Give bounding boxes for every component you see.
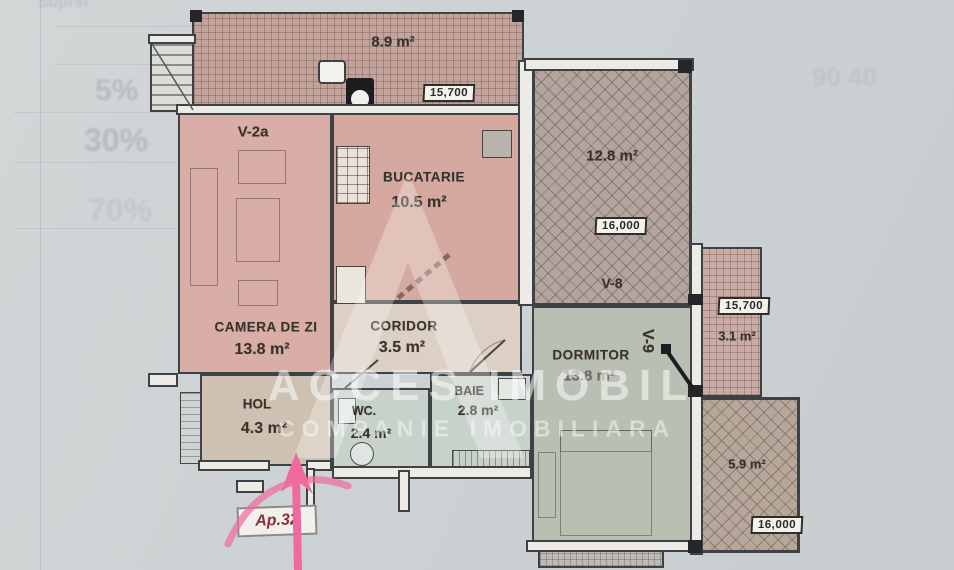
wall-dormitor-right — [690, 243, 703, 555]
wall-v8-top — [524, 58, 694, 71]
column-post — [678, 60, 692, 73]
wall-kitchen-right — [518, 60, 534, 306]
balcony-v8 — [532, 68, 692, 306]
dimension-box: 15,700 — [422, 84, 475, 102]
stairs — [150, 42, 194, 112]
nightstand-outline — [538, 452, 556, 518]
kitchen-sink-icon — [336, 266, 366, 304]
room-coridor-area: 3.5 m² — [379, 339, 425, 357]
dimension-box: 16,000 — [750, 516, 803, 534]
column-post — [688, 294, 703, 305]
wall-bath-bottom — [332, 466, 532, 479]
wall-hol-bottom-left — [198, 460, 270, 471]
bath-sink-icon — [498, 378, 526, 400]
column-post — [190, 10, 202, 22]
stove-icon — [336, 146, 370, 204]
room-wc-name: WC. — [352, 404, 376, 418]
room-coridor — [332, 302, 522, 374]
floorplan-scan: Supraf 5% 30% 70% 90 40 — [0, 0, 954, 570]
room-kitchen-area: 10.5 m² — [391, 194, 446, 212]
kitchen-counter-icon — [482, 130, 512, 158]
room-baie-area: 2.8 m² — [458, 402, 498, 418]
wall-topleft-stub — [148, 34, 196, 44]
window-label-v8: V-8 — [601, 275, 622, 291]
bed-pillow-outline — [560, 430, 652, 452]
wardrobe-icon — [180, 392, 202, 464]
page-edge-line — [40, 0, 41, 570]
column-post — [688, 540, 702, 553]
wall-niche-icon — [318, 60, 346, 84]
table-outline — [236, 198, 280, 262]
room-kitchen-name: BUCATARIE — [383, 170, 465, 185]
tv-stand-outline — [238, 150, 286, 184]
faint-heading: Supraf — [38, 0, 89, 12]
wall-below-wc — [398, 470, 410, 512]
room-coridor-name: CORIDOR — [370, 319, 437, 334]
faint-value-3: 70% — [88, 192, 152, 229]
chair-outline — [238, 280, 278, 306]
balcony-v8-area: 12.8 m² — [586, 148, 638, 165]
toilet-icon — [350, 442, 374, 466]
faint-value-2: 30% — [84, 122, 148, 159]
balcony-right — [700, 247, 762, 397]
balcony-top-area: 8.9 m² — [371, 34, 414, 51]
dimension-box: 15,700 — [717, 297, 770, 315]
wall-window-top — [176, 104, 526, 115]
door-jamb-left — [236, 480, 264, 493]
column-post — [688, 385, 703, 397]
faint-value-1: 5% — [95, 74, 138, 108]
window-label-v2a: V-2a — [238, 124, 269, 141]
window-label-v9: V-9 — [638, 329, 656, 353]
room-dormitor-name: DORMITOR — [552, 348, 629, 363]
balcony-right-area: 3.1 m² — [718, 329, 756, 344]
wall-dormitor-bottom — [526, 540, 702, 552]
sofa-outline — [190, 168, 218, 286]
dimension-box: 16,000 — [594, 217, 647, 235]
column-post — [512, 10, 524, 22]
wall-left-stub — [148, 373, 178, 387]
room-hol-area: 4.3 m² — [241, 420, 287, 438]
room-living-name: CAMERA DE ZI — [215, 320, 318, 335]
room-living-area: 13.8 m² — [234, 341, 289, 359]
faint-corner-note: 90 40 — [812, 62, 877, 93]
room-wc-area: 2.4 m² — [351, 425, 391, 441]
room-hol-name: HOL — [243, 397, 272, 412]
room-dormitor-area: 13.8 m² — [563, 368, 615, 385]
room-baie-name: BAIE — [454, 384, 484, 398]
balcony-bottom-right-area: 5.9 m² — [728, 457, 766, 472]
apartment-number-box: Ap.32 — [237, 505, 318, 538]
